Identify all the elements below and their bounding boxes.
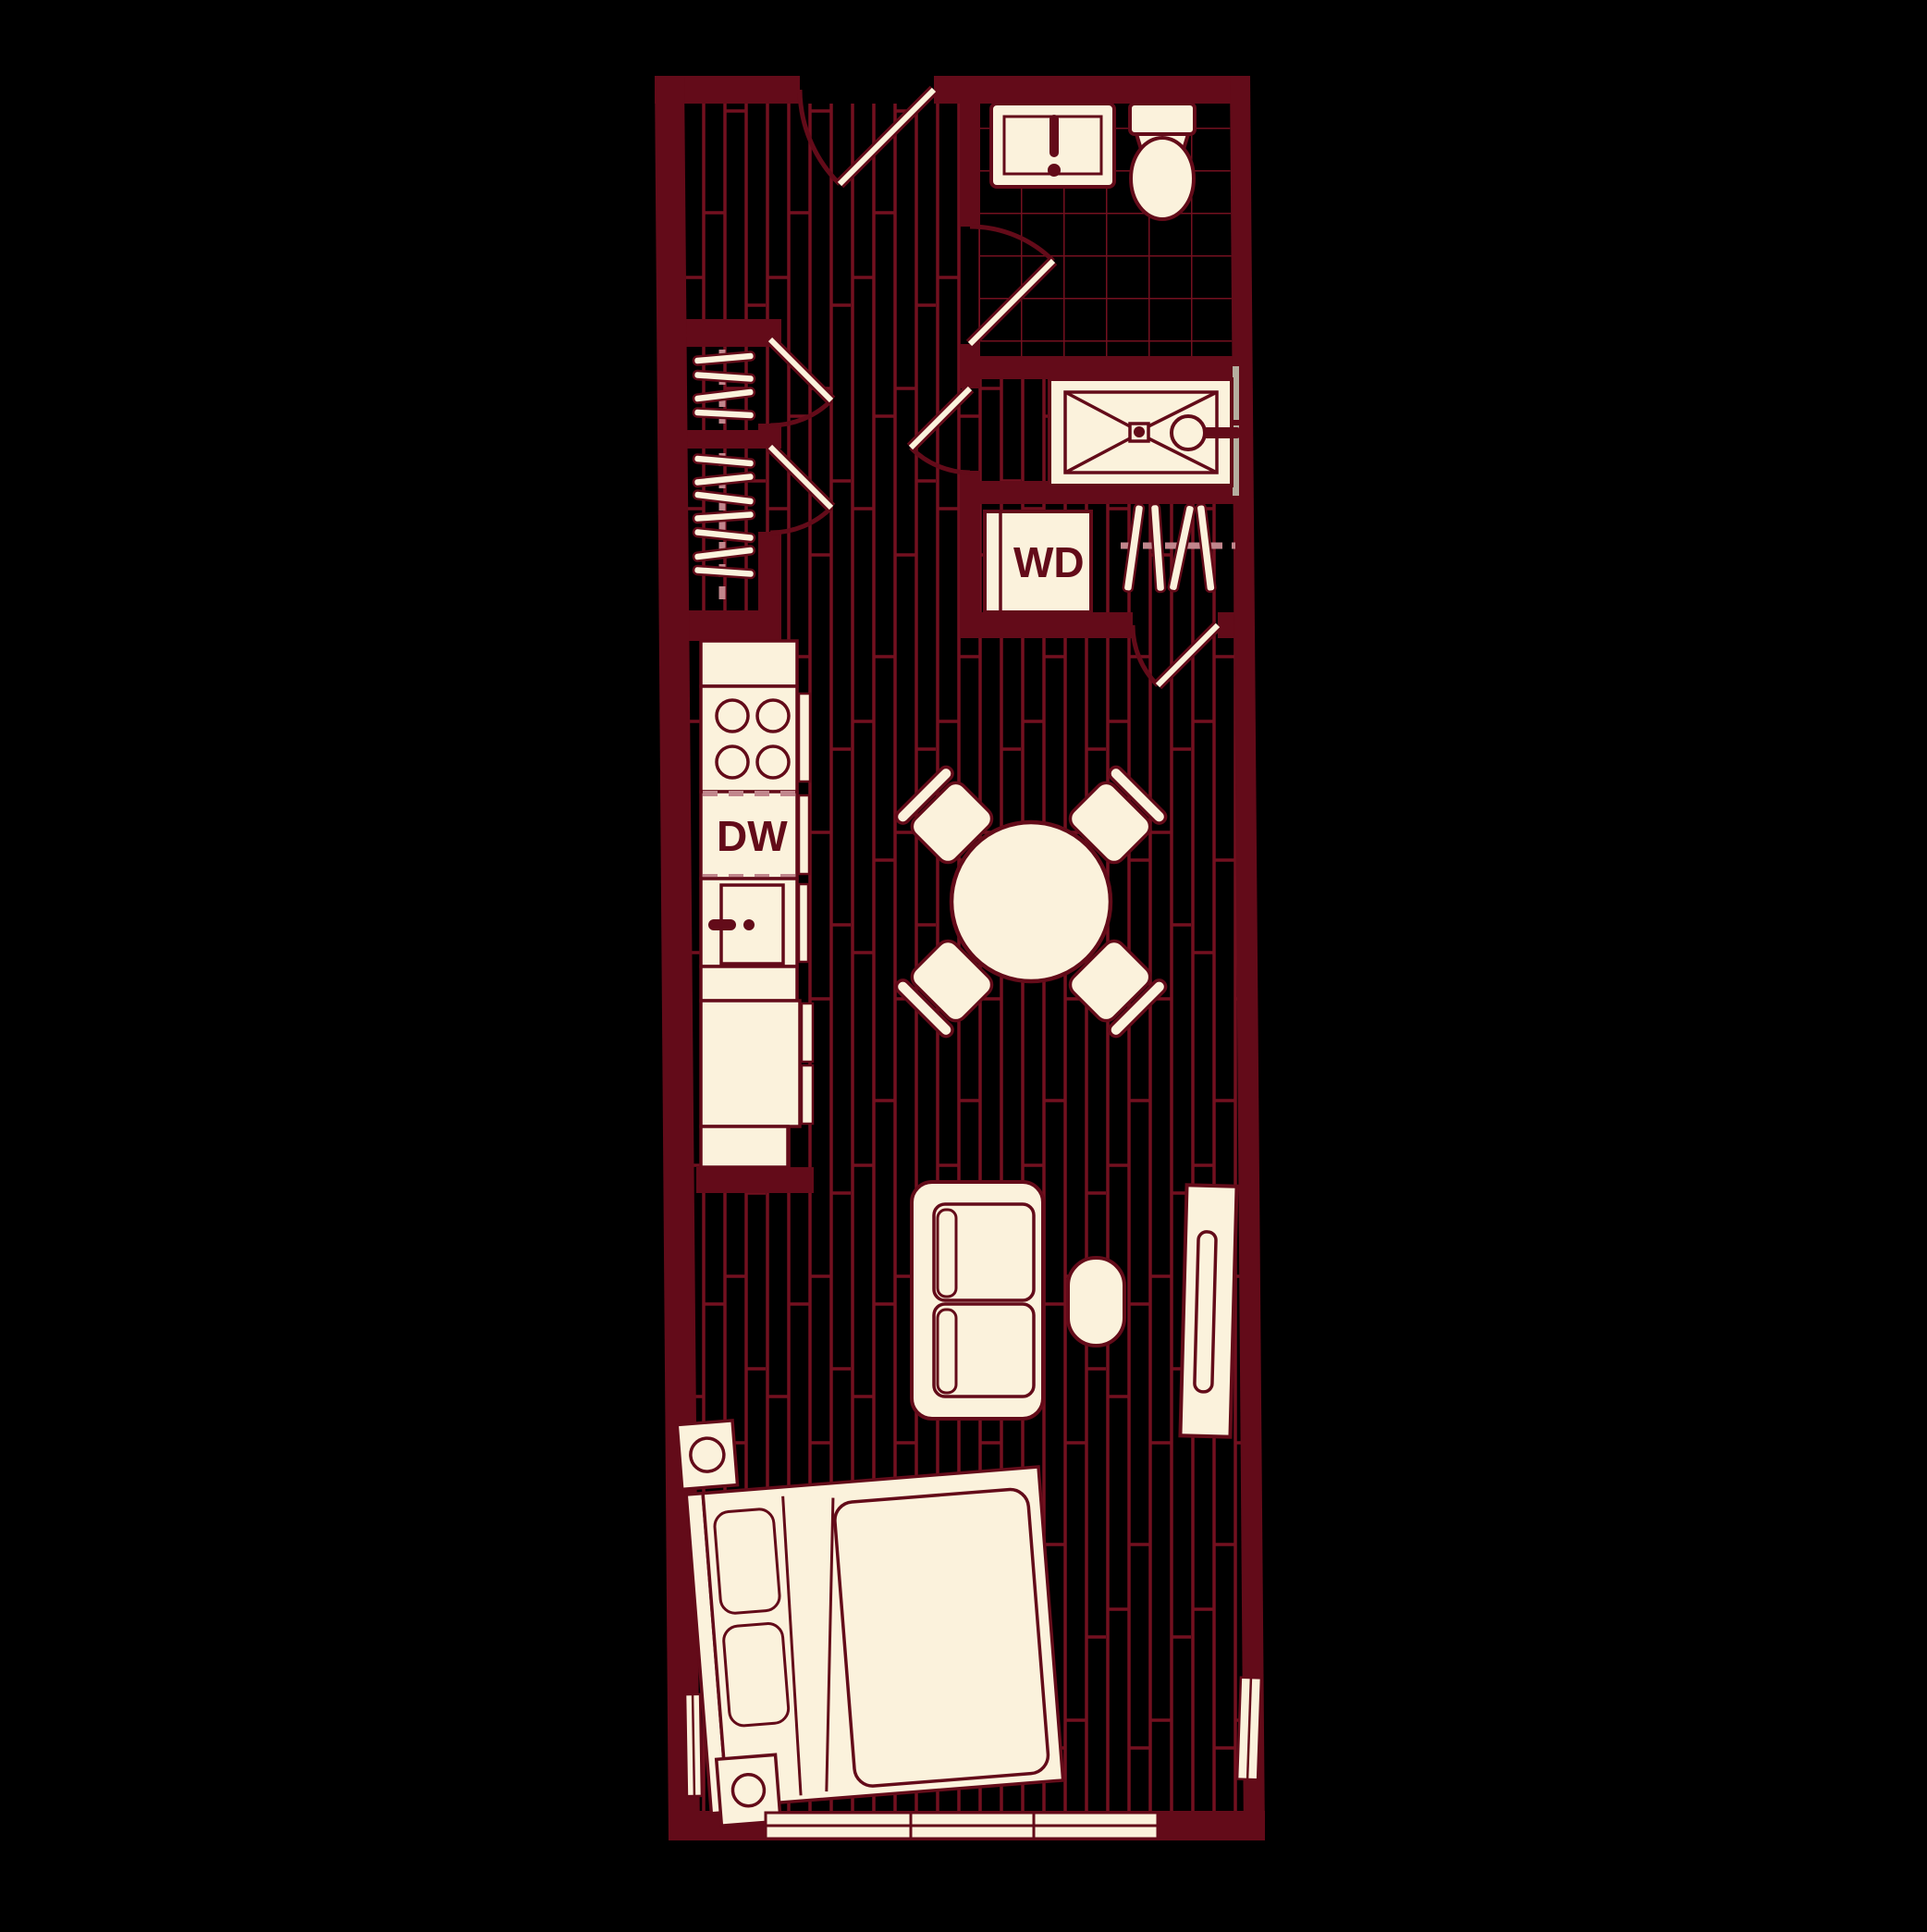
toilet <box>1130 104 1195 219</box>
laundry-bottom-wall <box>960 612 1133 638</box>
dishwasher-label: DW <box>717 812 788 860</box>
counter <box>701 966 797 1001</box>
bath-shower-wall <box>978 356 1235 379</box>
range-stove <box>701 686 810 792</box>
right-wall-window <box>1237 1678 1261 1780</box>
round-dining-table <box>951 822 1111 981</box>
fridge-door-handle <box>802 1065 813 1124</box>
cabinet-handle <box>799 884 808 962</box>
kitchen: DW <box>696 641 814 1193</box>
hall-bath-partition <box>960 104 980 227</box>
oven-handle <box>799 694 810 781</box>
shower-window-glass <box>1233 366 1239 420</box>
counter-end <box>701 1126 788 1167</box>
bathroom-vanity-sink <box>991 104 1114 187</box>
hall-bath-partition <box>960 344 980 388</box>
kitchen-sink <box>701 879 808 966</box>
washer-dryer-unit: WD <box>985 511 1091 612</box>
top-wall-right <box>934 76 1250 104</box>
faucet-icon <box>708 919 736 930</box>
left-wall-window <box>685 1694 702 1796</box>
closet-front-wall <box>758 319 781 341</box>
dishwasher-handle <box>799 795 809 874</box>
closet-front-wall <box>758 532 781 641</box>
dishwasher: DW <box>701 792 809 879</box>
kitchen-end-wall <box>696 1167 814 1193</box>
floor-plan: WD <box>0 0 1927 1927</box>
counter <box>701 641 797 686</box>
refrigerator <box>701 1001 813 1126</box>
faucet-icon <box>1049 115 1059 157</box>
loveseat-sofa <box>912 1182 1043 1419</box>
bottom-window <box>766 1813 1158 1839</box>
washer-dryer-label: WD <box>1013 538 1085 586</box>
floor-plan-page: WD <box>0 0 1927 1927</box>
nightstand <box>677 1421 737 1489</box>
ottoman <box>1068 1258 1124 1346</box>
fridge-door-handle <box>802 1003 813 1062</box>
tv-console <box>1180 1185 1236 1436</box>
shower <box>1049 379 1240 486</box>
